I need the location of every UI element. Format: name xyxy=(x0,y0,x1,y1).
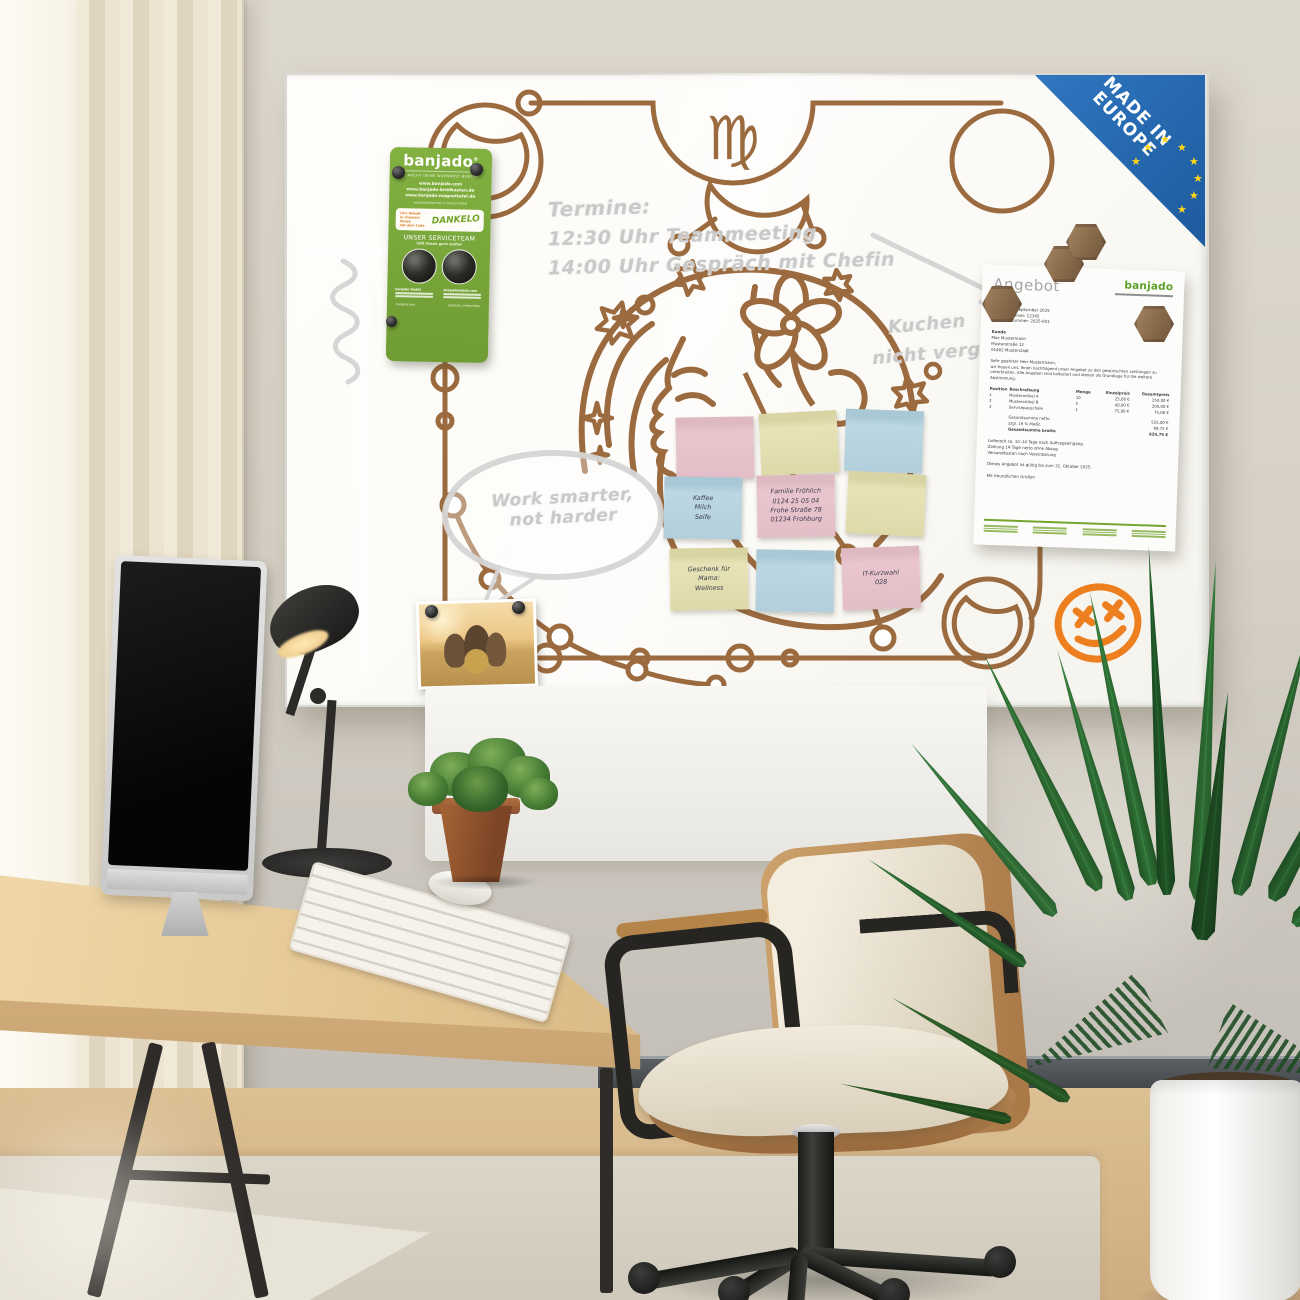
eu-star-icon: ★ xyxy=(1177,203,1187,216)
contact-heading: shop@banjado.com xyxy=(443,288,481,293)
home-office-photo: ♍ xyxy=(0,0,1300,1300)
fine-print-line xyxy=(443,293,481,296)
cell: 75,00 € xyxy=(1129,408,1169,415)
lamp-joint xyxy=(310,688,326,704)
white-planter-pot xyxy=(1150,1080,1300,1300)
doc-footer xyxy=(984,518,1166,539)
sticky-text-line: Kaffee xyxy=(693,494,714,504)
doc-closing: Mit freundlichen Grüßen xyxy=(986,473,1166,485)
desk-leg xyxy=(600,1068,613,1293)
sticky-text-line: Geschenk für xyxy=(688,565,731,575)
pot-shadow xyxy=(430,874,540,890)
flyer-reg-mark: ® xyxy=(473,157,478,163)
doc-intro: Sehr geehrter Herr Mustermann, wir freue… xyxy=(990,358,1171,386)
fern-foliage xyxy=(408,772,448,806)
sticky-note xyxy=(845,471,926,537)
doc-header: Angebot banjado xyxy=(993,275,1174,299)
flyer-promo-box: 15% Rabatt in unserem Shops mit dem Code… xyxy=(396,208,484,232)
cell: 1 xyxy=(1075,406,1097,413)
total-value: 624,75 € xyxy=(1096,430,1168,438)
round-magnet xyxy=(392,166,405,179)
fine-print-line xyxy=(443,297,481,300)
doc-table: Position Beschreibung Menge Einzelpreis … xyxy=(989,386,1170,416)
footer-col xyxy=(1033,526,1067,536)
eu-star-icon: ★ xyxy=(1189,155,1199,168)
imac-screen xyxy=(108,561,261,871)
footer-col xyxy=(984,524,1018,534)
eu-star-icon: ★ xyxy=(1160,133,1170,146)
sticky-note: Kaffee Milch Seife xyxy=(663,476,742,539)
footer-col xyxy=(1082,527,1116,537)
promo-line: mit dem Code xyxy=(400,223,429,228)
footer-col xyxy=(1131,529,1165,539)
sticky-text-line: Seife xyxy=(695,513,711,523)
crescent-icon xyxy=(954,598,1020,656)
caster-wheel xyxy=(984,1246,1016,1278)
doc-logo-name: banjado xyxy=(1115,279,1173,293)
banjado-flyer: banjado® ...MACHT DEINE WOHNWELT BUNTER … xyxy=(386,147,492,363)
eu-star-icon: ★ xyxy=(1131,155,1141,168)
round-magnet xyxy=(512,601,525,614)
flyer-contact-col: banjado GmbH xyxy=(395,287,433,300)
round-magnet xyxy=(425,605,438,618)
flyer-url: www.banjado-magnettafel.de xyxy=(394,192,486,200)
fern-foliage xyxy=(452,766,508,812)
sticky-note xyxy=(675,416,754,479)
squiggle-doodle xyxy=(333,261,358,382)
fine-print-line xyxy=(395,296,433,299)
sticky-text-line: Milch xyxy=(695,503,712,513)
fern-foliage xyxy=(520,778,558,810)
caster-wheel xyxy=(718,1276,750,1300)
eu-star-icon: ★ xyxy=(1189,189,1199,202)
sticky-note: IT-Kurzwahl 028 xyxy=(841,546,921,611)
round-magnet xyxy=(386,316,397,327)
imac-monitor xyxy=(101,555,268,901)
chair-armrest xyxy=(859,909,1018,1004)
cell: 3 xyxy=(989,403,1009,410)
orange-smiley-drawing xyxy=(1042,571,1154,674)
social-handle: banjado.com xyxy=(396,302,415,306)
flyer-shipping-note: versandkostenfrei in Deutschland xyxy=(394,200,486,206)
flyer-contacts: banjado GmbH shop@banjado.com xyxy=(395,287,481,301)
eu-star-icon: ★ xyxy=(1143,141,1153,154)
family-silhouette xyxy=(486,632,507,667)
cell: 75,00 € xyxy=(1097,407,1130,414)
sticky-text-line: Wellness xyxy=(695,583,724,593)
flyer-social-row: banjado.com banjado_onlineshops xyxy=(396,302,480,308)
contact-heading: banjado GmbH xyxy=(395,287,433,292)
flyer-promo-text: 15% Rabatt in unserem Shops mit dem Code xyxy=(400,211,429,228)
handwriting-termine-title: Termine: xyxy=(548,194,652,222)
doc-totals: Gesamtsumme netto525,00 € zzgl. 19 % MwS… xyxy=(988,414,1169,438)
sticky-note xyxy=(755,549,834,612)
fine-print-line xyxy=(395,292,433,295)
sticky-note xyxy=(844,409,924,474)
sticky-text-line: 028 xyxy=(875,578,888,588)
social-handle: banjado_onlineshops xyxy=(448,303,480,308)
dog-photo-left xyxy=(401,248,437,284)
flyer-discount-code: DANKELO xyxy=(431,214,480,226)
eu-star-icon: ★ xyxy=(1193,172,1203,185)
doc-logo: banjado xyxy=(1115,279,1174,297)
family-silhouette xyxy=(464,649,489,674)
doc-logo-address-line xyxy=(1115,293,1173,297)
caster-wheel xyxy=(628,1262,660,1294)
chair-column xyxy=(798,1132,834,1260)
doc-validity: Dieses Angebot ist gültig bis zum 31. Ok… xyxy=(987,461,1167,473)
doc-terms: Lieferzeit ca. 10–14 Tage nach Auftragse… xyxy=(987,438,1167,462)
sticky-text-line: 01234 Frohburg xyxy=(770,515,822,525)
imac-chin xyxy=(107,869,248,895)
flyer-dog-photos xyxy=(392,248,485,285)
sticky-text-line: Mama: xyxy=(698,574,720,584)
dog-photo-right xyxy=(441,249,477,285)
flyer-contact-col: shop@banjado.com xyxy=(443,288,481,301)
sticky-note: Geschenk für Mama: Wellness xyxy=(669,547,748,610)
sticky-note xyxy=(758,410,839,476)
virgo-symbol: ♍ xyxy=(706,104,760,174)
sticky-note: Familie Fröhlich 0124 25 05 04 Frohe Str… xyxy=(756,474,835,537)
eu-star-icon: ★ xyxy=(1177,141,1187,154)
cell: Servicepauschale xyxy=(1009,404,1076,412)
round-magnet xyxy=(470,163,483,176)
flyer-brand: banjado xyxy=(403,151,473,170)
